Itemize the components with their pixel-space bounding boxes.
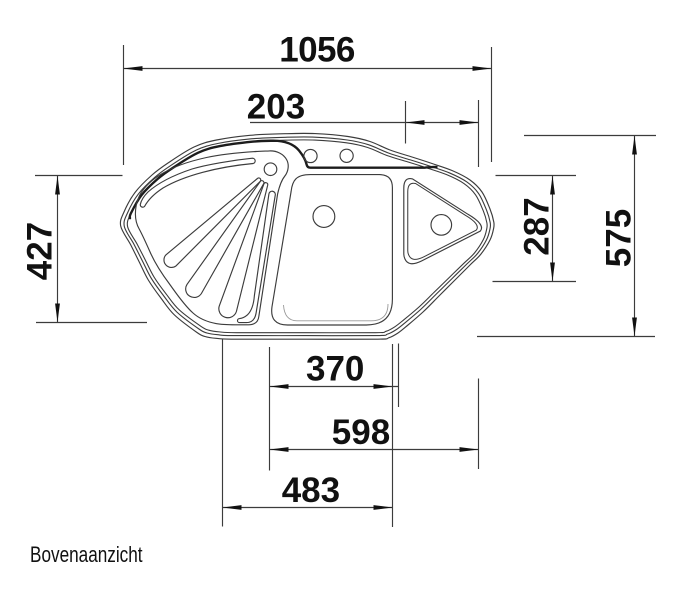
svg-text:1056: 1056 bbox=[279, 31, 355, 70]
svg-text:575: 575 bbox=[600, 209, 639, 267]
svg-text:483: 483 bbox=[282, 471, 340, 510]
svg-text:287: 287 bbox=[518, 197, 557, 255]
svg-text:598: 598 bbox=[332, 413, 390, 452]
svg-text:370: 370 bbox=[306, 350, 364, 389]
svg-text:427: 427 bbox=[21, 222, 60, 280]
svg-text:203: 203 bbox=[247, 88, 305, 127]
